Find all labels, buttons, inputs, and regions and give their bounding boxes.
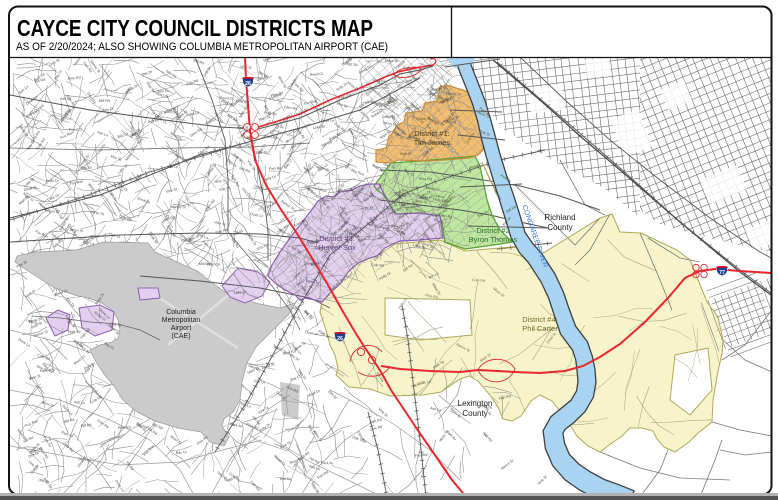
svg-text:Park Av: Park Av — [321, 461, 334, 465]
svg-text:Pine Rd: Pine Rd — [419, 177, 432, 181]
svg-text:Cole Rd: Cole Rd — [371, 263, 384, 268]
svg-text:Airport: Airport — [171, 325, 192, 332]
svg-text:Phil Carter: Phil Carter — [522, 324, 558, 333]
svg-text:26: 26 — [337, 336, 343, 342]
svg-text:District #1:: District #1: — [414, 129, 449, 138]
svg-text:Metropolitan: Metropolitan — [162, 317, 201, 324]
svg-text:Vine St: Vine St — [240, 65, 252, 70]
svg-text:(CAE): (CAE) — [171, 333, 190, 340]
svg-text:District #2: District #2 — [476, 226, 509, 235]
svg-text:Reed Ct: Reed Ct — [220, 96, 233, 101]
svg-text:Pine Rd: Pine Rd — [118, 425, 131, 430]
svg-text:Moss Dr: Moss Dr — [385, 59, 399, 63]
svg-text:Holly Dr: Holly Dr — [420, 195, 434, 200]
svg-text:Nance St: Nance St — [446, 92, 461, 97]
svg-text:77: 77 — [719, 270, 725, 276]
svg-text:County: County — [547, 223, 572, 232]
svg-text:Columbia: Columbia — [166, 309, 196, 316]
svg-text:Holly Dr: Holly Dr — [46, 179, 60, 183]
svg-text:Elm Dr: Elm Dr — [280, 477, 292, 481]
svg-text:District #4:: District #4: — [522, 315, 557, 324]
svg-text:County: County — [462, 409, 487, 418]
svg-text:Mill Rd: Mill Rd — [99, 99, 110, 103]
svg-text:Tim James: Tim James — [414, 138, 451, 147]
svg-text:Hunter Sox: Hunter Sox — [318, 243, 356, 252]
svg-text:Vine St: Vine St — [237, 126, 249, 130]
svg-text:Vine St: Vine St — [400, 152, 412, 156]
svg-text:Nance St: Nance St — [171, 205, 186, 209]
svg-text:CAYCE CITY COUNCIL DISTRICTS M: CAYCE CITY COUNCIL DISTRICTS MAP — [17, 15, 373, 41]
svg-text:Dove Ln: Dove Ln — [321, 119, 334, 123]
svg-text:Platt Sp: Platt Sp — [68, 330, 81, 334]
svg-text:26: 26 — [245, 81, 251, 87]
svg-text:Wren St: Wren St — [207, 262, 220, 267]
svg-text:Fish Rd: Fish Rd — [269, 166, 282, 171]
svg-text:District #3:: District #3: — [319, 234, 354, 243]
svg-text:Lexington: Lexington — [458, 399, 493, 408]
svg-text:AS OF 2/20/2024; ALSO SHOWING: AS OF 2/20/2024; ALSO SHOWING COLUMBIA M… — [16, 41, 388, 53]
svg-text:Byron Thomas: Byron Thomas — [469, 235, 518, 244]
svg-text:Richland: Richland — [544, 213, 575, 222]
svg-text:Ash Ln: Ash Ln — [167, 165, 178, 169]
